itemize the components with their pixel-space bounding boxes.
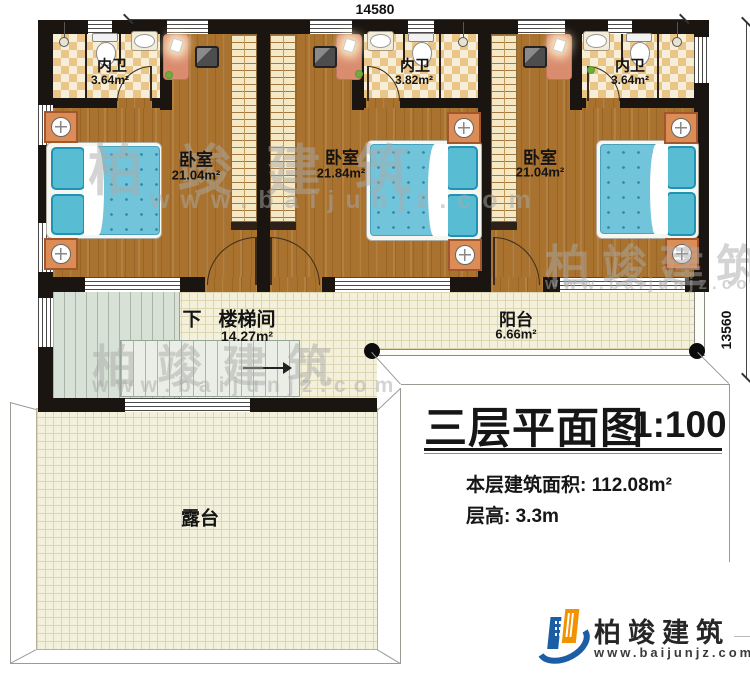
page-title: 三层平面图 bbox=[424, 394, 644, 456]
balcony-area: 6.66m² bbox=[495, 327, 536, 342]
bath1-area: 3.64m² bbox=[91, 73, 129, 87]
pillow-icon bbox=[51, 147, 85, 190]
shower-icon bbox=[458, 37, 468, 47]
wardrobe-cap bbox=[491, 222, 517, 230]
company-website: www.baijunjz.com bbox=[594, 645, 750, 660]
table-lamp-icon bbox=[671, 118, 691, 138]
pillow-icon bbox=[666, 146, 696, 189]
shower-icon bbox=[672, 37, 682, 47]
table-lamp-icon bbox=[51, 244, 71, 264]
nightstand bbox=[665, 238, 699, 270]
sink-basin-icon bbox=[370, 34, 391, 48]
window bbox=[38, 298, 53, 347]
terrace-parapet bbox=[10, 663, 401, 664]
dimension-top: 14580 bbox=[340, 1, 410, 17]
stair-direction-label: 下 bbox=[182, 305, 201, 332]
window bbox=[310, 20, 352, 34]
nightstand bbox=[447, 112, 481, 144]
plant-icon bbox=[587, 66, 595, 74]
bath2-door-leaf bbox=[367, 66, 369, 101]
desk-chair-icon bbox=[195, 46, 219, 68]
bedroom2-area: 21.84m² bbox=[317, 166, 365, 181]
desk-chair-icon bbox=[523, 46, 547, 68]
dimension-line-right bbox=[746, 22, 747, 378]
wardrobe-cap bbox=[231, 222, 257, 230]
bath3-area: 3.64m² bbox=[611, 73, 649, 87]
plant-icon bbox=[355, 70, 363, 78]
pillow-icon bbox=[51, 194, 85, 235]
table-lamp-icon bbox=[51, 117, 71, 137]
window bbox=[408, 20, 434, 34]
lamp-icon bbox=[342, 38, 356, 54]
eave-line bbox=[401, 384, 730, 385]
pillow-icon bbox=[446, 194, 478, 237]
desk-rug bbox=[546, 34, 572, 80]
sheet-fold bbox=[84, 146, 104, 235]
wardrobe bbox=[270, 34, 296, 222]
toilet-icon bbox=[92, 33, 118, 42]
bath1-partition bbox=[85, 34, 87, 98]
nightstand bbox=[448, 239, 482, 271]
nightstand bbox=[44, 111, 78, 143]
window bbox=[518, 20, 565, 34]
shower-cord bbox=[64, 22, 65, 37]
bath2-partition bbox=[439, 34, 441, 98]
toilet-icon bbox=[626, 33, 652, 42]
window bbox=[560, 277, 685, 292]
bath2-area: 3.82m² bbox=[395, 73, 433, 87]
wall-divider1 bbox=[257, 34, 270, 292]
bath3-partition bbox=[657, 34, 659, 98]
column-marker bbox=[364, 343, 380, 359]
shower-cord bbox=[463, 22, 464, 37]
terrace-parapet-miter bbox=[376, 649, 400, 664]
stair-arrow-head-icon bbox=[283, 362, 292, 374]
window bbox=[608, 20, 632, 34]
eave-line bbox=[729, 384, 730, 562]
table-lamp-icon bbox=[455, 245, 475, 265]
window bbox=[335, 277, 450, 292]
wardrobe bbox=[491, 34, 517, 222]
desk-chair-icon bbox=[313, 46, 337, 68]
terrace-label: 露台 bbox=[181, 504, 219, 531]
terrace-parapet bbox=[400, 388, 401, 664]
window bbox=[167, 20, 208, 34]
wardrobe-cap bbox=[270, 222, 296, 230]
lamp-icon bbox=[552, 38, 566, 54]
pillow-icon bbox=[446, 146, 478, 190]
sink-basin-icon bbox=[134, 34, 155, 48]
floor-plan: 柏竣建筑 www.baijunjz.com 柏竣建筑 www.baijunjz.… bbox=[0, 0, 750, 676]
window bbox=[125, 398, 250, 412]
balcony-floor bbox=[377, 292, 694, 351]
nightstand bbox=[664, 112, 698, 144]
table-lamp-icon bbox=[672, 244, 692, 264]
window bbox=[694, 37, 709, 83]
terrace-parapet bbox=[10, 402, 11, 663]
bedroom1-door-leaf bbox=[255, 237, 257, 285]
wardrobe bbox=[231, 34, 257, 222]
bedroom1-area: 21.04m² bbox=[172, 168, 220, 183]
toilet-icon bbox=[408, 33, 434, 42]
drawing-scale: 1:100 bbox=[632, 404, 727, 446]
shower-icon bbox=[59, 37, 69, 47]
floor-area-text: 本层建筑面积: 112.08m² bbox=[466, 470, 672, 497]
window bbox=[88, 20, 112, 34]
title-rule bbox=[424, 448, 722, 451]
terrace-parapet-miter bbox=[10, 402, 36, 410]
title-rule-thin bbox=[424, 453, 722, 454]
table-lamp-icon bbox=[454, 118, 474, 138]
sheet-fold bbox=[428, 144, 448, 236]
floor-height-text: 层高: 3.3m bbox=[466, 501, 559, 528]
bedroom2-door-leaf bbox=[270, 237, 272, 285]
bedroom3-area: 21.04m² bbox=[516, 165, 564, 180]
shower-cord bbox=[677, 22, 678, 37]
nightstand bbox=[44, 238, 78, 270]
plant-icon bbox=[165, 71, 173, 79]
balcony-railing bbox=[372, 349, 705, 356]
bedroom3-door-leaf bbox=[493, 237, 495, 285]
terrace-parapet-miter bbox=[10, 649, 36, 663]
dimension-right: 13560 bbox=[718, 300, 734, 360]
stair-direction-arrow bbox=[243, 367, 285, 369]
company-logo-icon bbox=[535, 603, 593, 665]
lamp-icon bbox=[169, 38, 183, 54]
terrace-parapet-miter bbox=[377, 388, 401, 411]
window bbox=[85, 277, 180, 292]
sink-basin-icon bbox=[586, 34, 607, 48]
sheet-fold bbox=[650, 144, 668, 234]
logo-rule bbox=[734, 636, 750, 637]
dimension-line-top bbox=[128, 19, 684, 20]
bath1-door-leaf bbox=[150, 66, 152, 101]
pillow-icon bbox=[666, 192, 696, 236]
stairwell-area: 14.27m² bbox=[221, 328, 273, 344]
